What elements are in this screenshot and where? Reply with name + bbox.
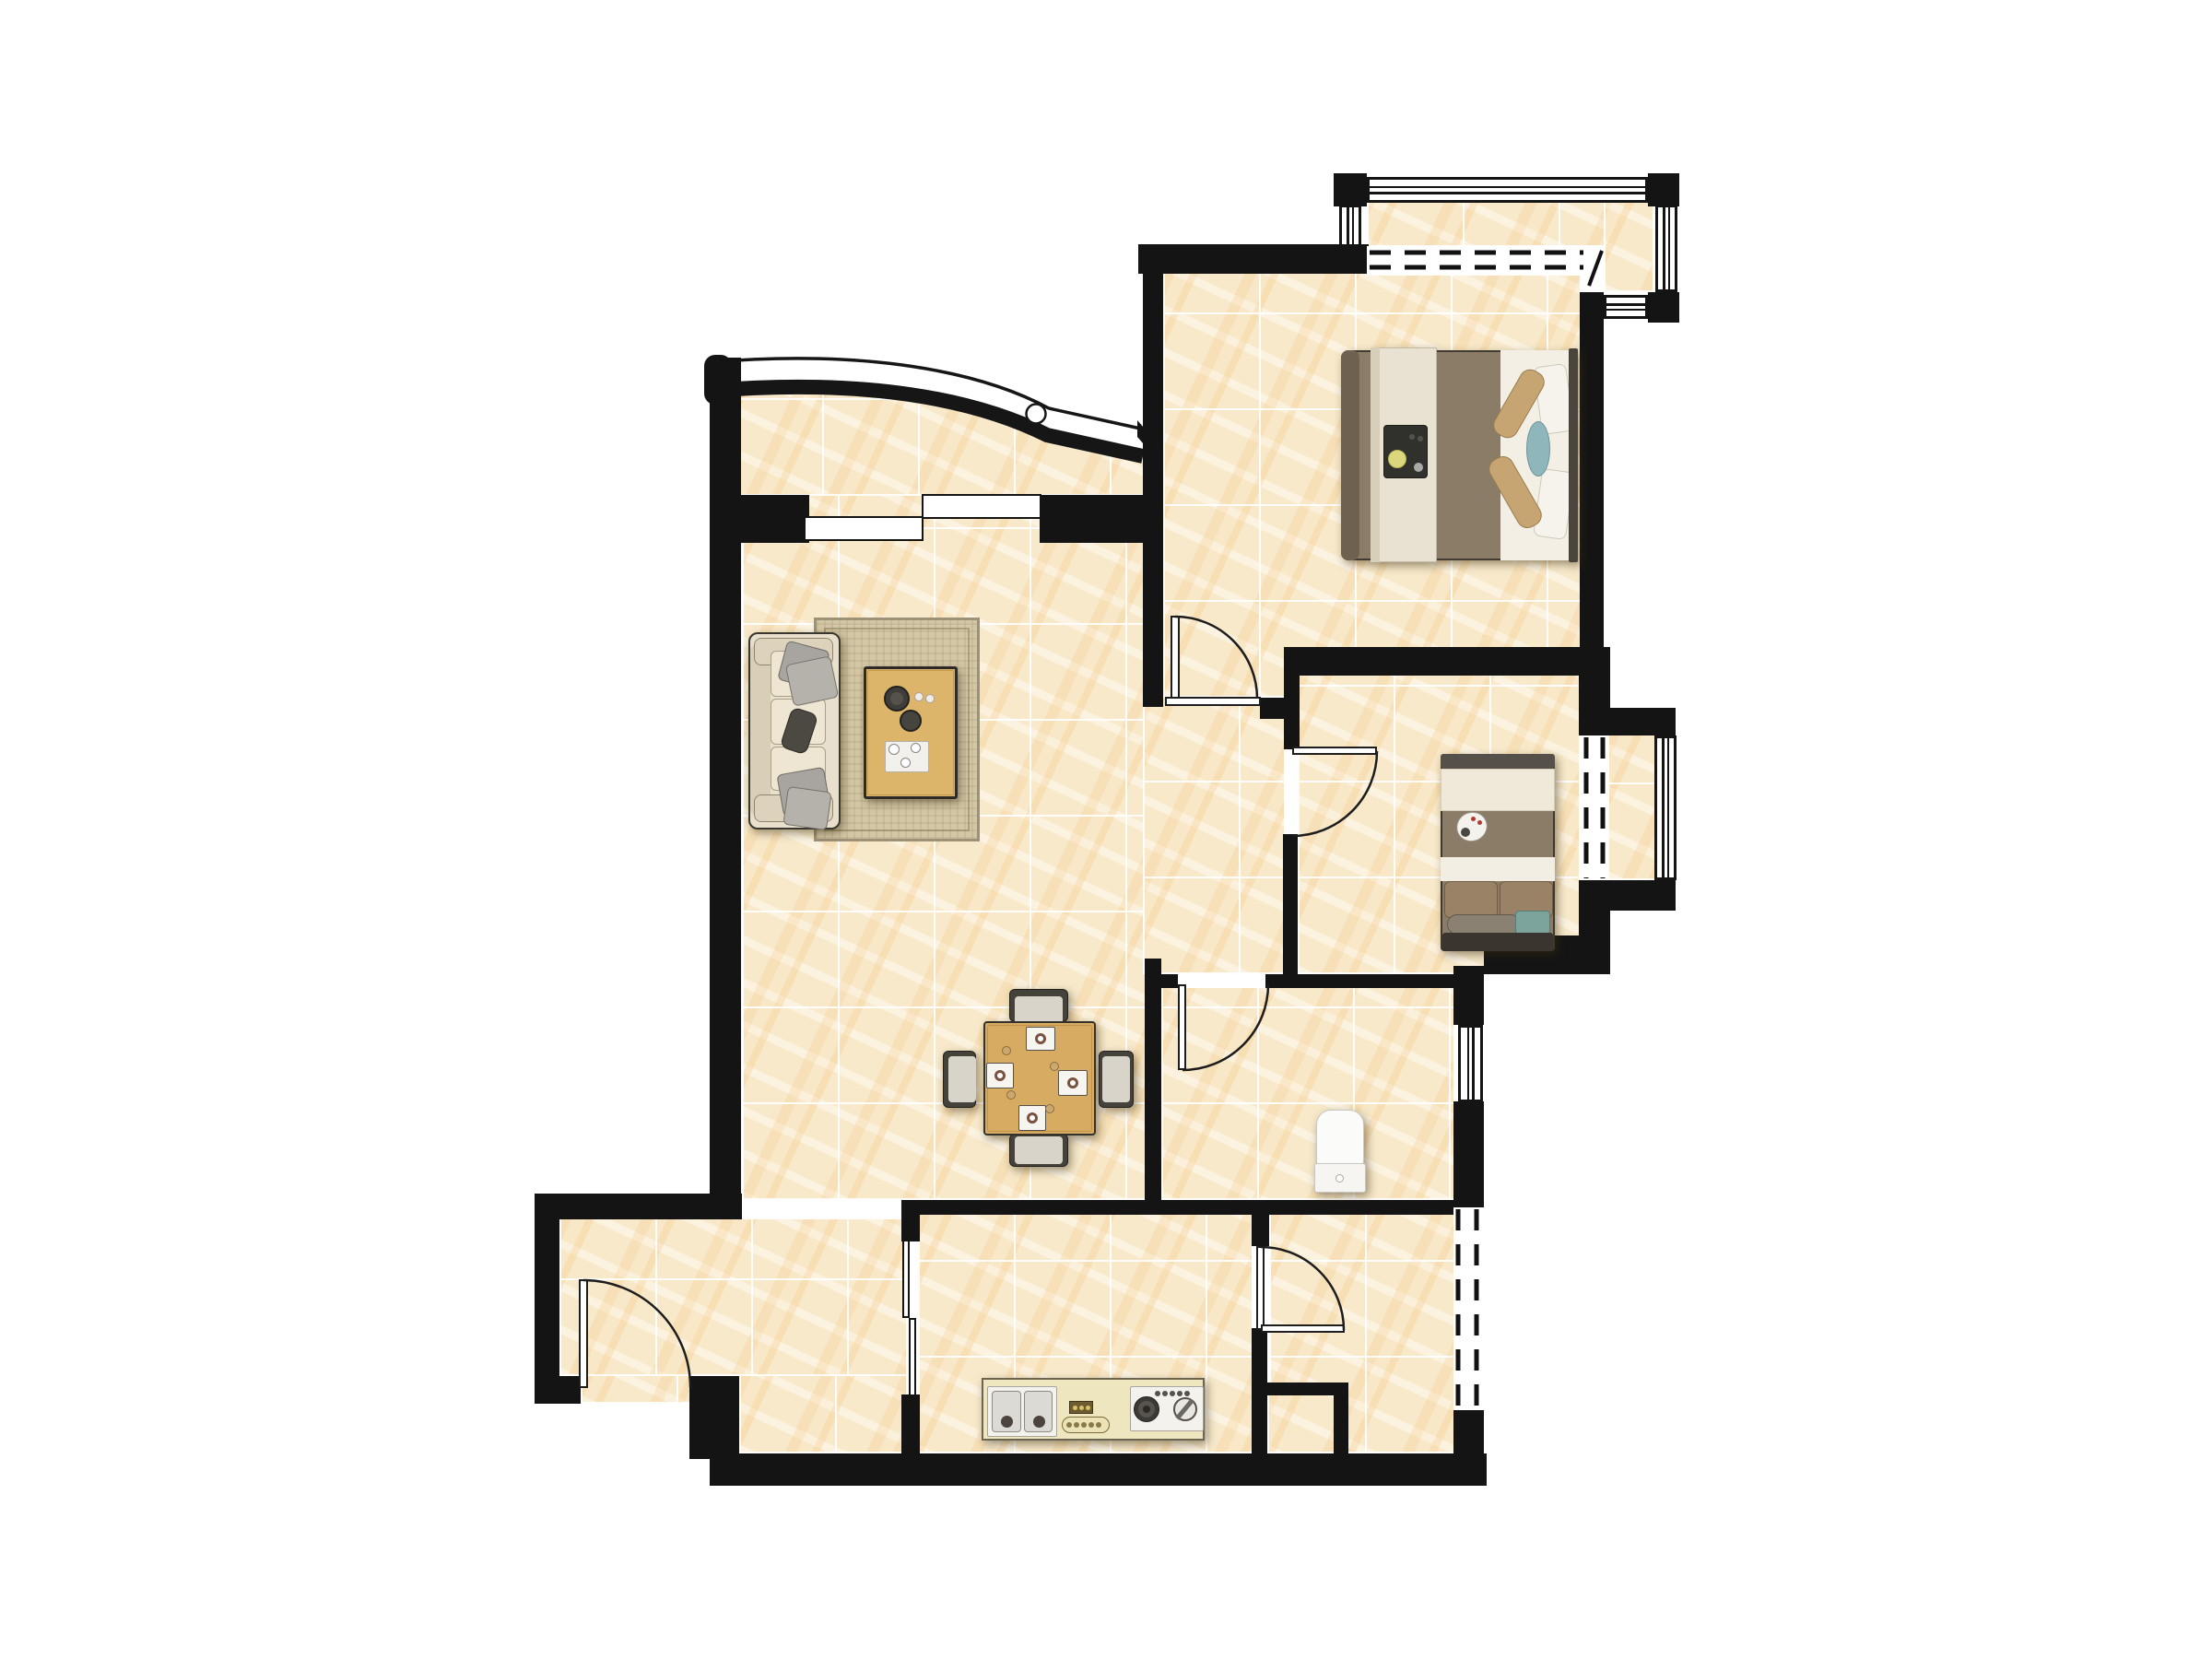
floor-plan [0, 0, 2212, 1659]
kitchen-counter-part [1088, 1422, 1094, 1428]
kitchen-counter-part [1184, 1391, 1190, 1396]
kitchen-counter-part [1155, 1391, 1160, 1396]
kitchen-counter-part [1170, 1391, 1175, 1396]
kitchen-counter-part [1079, 1406, 1084, 1410]
kitchen-counter-part [1086, 1406, 1090, 1410]
kitchen-counter-part [1073, 1406, 1077, 1410]
kitchen-counter-part [1074, 1422, 1079, 1428]
kitchen-counter-part [1033, 1416, 1045, 1428]
kitchen-counter-part [1143, 1406, 1150, 1413]
kitchen-counter-part [1081, 1422, 1087, 1428]
kitchen-counter [0, 0, 2212, 1659]
kitchen-counter-part [1096, 1422, 1101, 1428]
kitchen-counter-part [1066, 1422, 1072, 1428]
kitchen-counter-part [1177, 1391, 1182, 1396]
kitchen-counter-part [1001, 1416, 1013, 1428]
kitchen-counter-part [1162, 1391, 1168, 1396]
